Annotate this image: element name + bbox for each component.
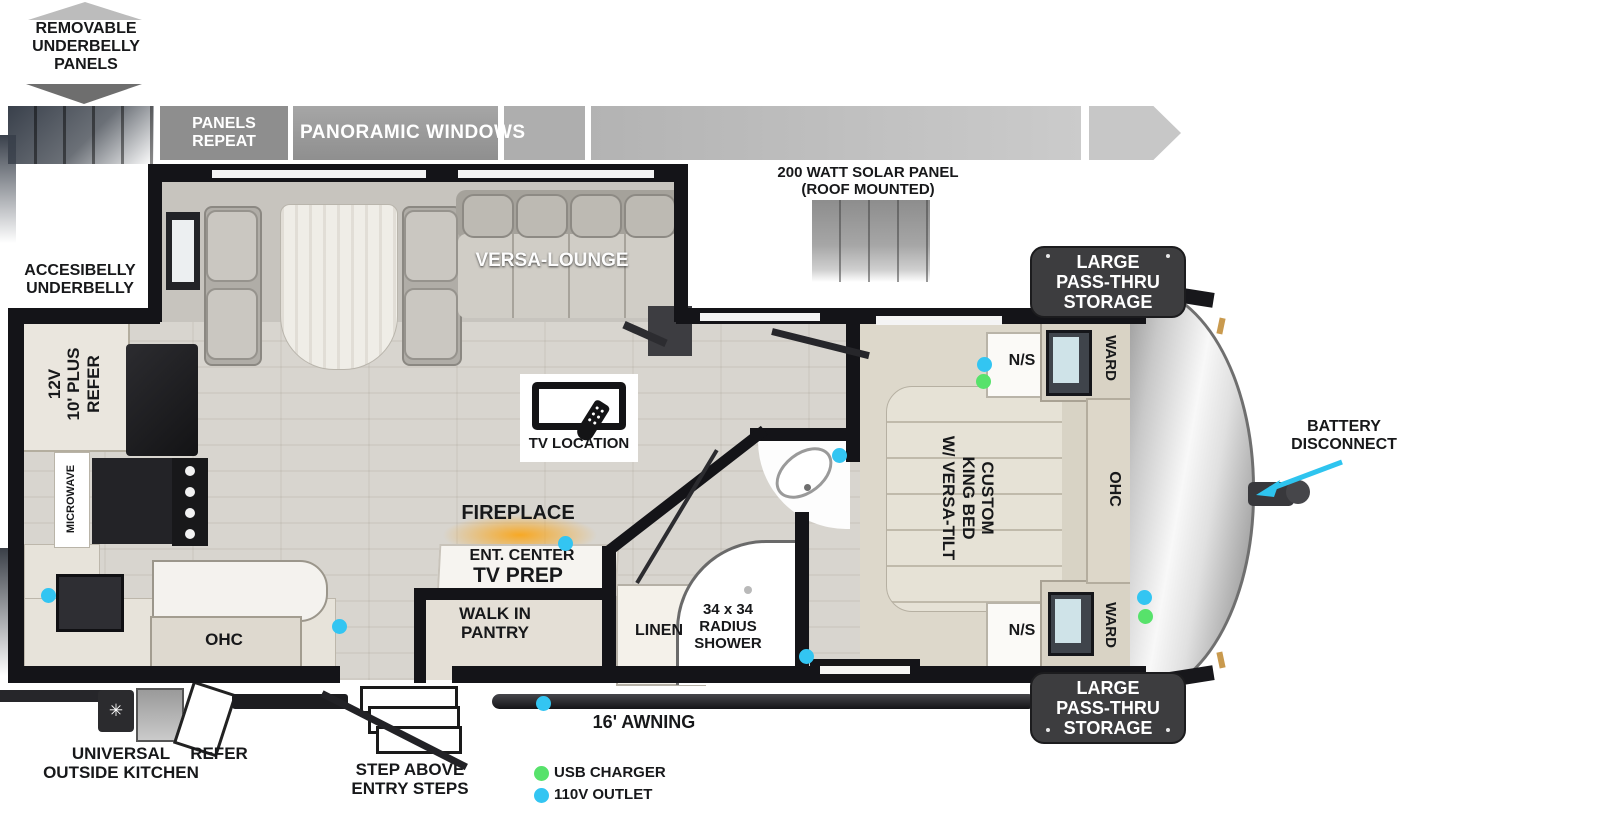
pass-thru-storage-badge: LARGE PASS-THRU STORAGE [1030,246,1186,318]
shower-label: 34 x 34 RADIUS SHOWER [688,602,768,652]
110v-outlet-dot [832,448,847,463]
wardrobe-label: WARD [1098,590,1118,660]
pantry-wall-top [414,588,610,600]
rear-bumper-bar [0,690,104,702]
microwave-label: MICROWAVE [58,451,84,547]
window-slit [876,316,1002,325]
removable-underbelly-label: REMOVABLE UNDERBELLY PANELS [24,20,148,74]
wall-left [8,308,24,683]
110v-outlet-dot [1137,590,1152,605]
window-glass [172,220,194,282]
refrigerator-unit [126,344,198,456]
screw-dot [1166,254,1170,258]
slideout-wall-left [148,164,162,322]
110v-outlet-dot [558,536,573,551]
battery-disconnect-label: BATTERY DISCONNECT [1282,418,1406,454]
usb-charger-legend-dot [534,766,549,781]
pass-thru-storage-badge: LARGE PASS-THRU STORAGE [1030,672,1186,744]
underbelly-panels-edge [0,135,16,243]
slideout-wall-right [674,164,688,322]
outlet-legend-dot [534,788,549,803]
110v-outlet-dot [977,357,992,372]
versa-lounge-headrest [462,194,514,238]
nightstand-label: N/S [988,622,1056,640]
kitchen-window [56,574,124,632]
dinette-cushion [206,288,258,360]
pantry-wall-left [414,588,426,683]
versa-lounge-label: VERSA-LOUNGE [462,250,642,271]
110v-outlet-dot [332,619,347,634]
outside-refer-label: REFER [184,744,254,763]
bedroom-ohc-label: OHC [1103,459,1123,519]
awning-label: 16' AWNING [584,712,704,732]
dinette-cushion [404,288,458,360]
tv-prep-label: TV PREP [448,564,588,588]
fireplace-label: FIREPLACE [446,502,590,524]
arrow-down-icon [26,84,142,104]
microwave-unit [92,458,172,544]
window-banner-arrow [1089,106,1181,160]
versa-lounge-headrest [570,194,622,238]
usb-charger-legend-label: USB CHARGER [554,765,694,782]
window-banner-segment [591,106,1081,160]
refrigerator-label: 12V 10' PLUS REFER [26,324,122,444]
kitchen-ohc-label: OHC [196,630,252,649]
110v-outlet-dot [536,696,551,711]
dinette-table [280,204,398,370]
faucet-dot [804,484,811,491]
window-slit [700,313,820,321]
110v-outlet-dot [41,588,56,603]
front-cap [1130,284,1255,698]
panels-repeat-banner: PANELS REPEAT [160,106,288,160]
wall-bottom-left [8,666,340,683]
shower-drain [744,586,752,594]
king-bed-label: CUSTOM KING BED W/ VERSA-TILT [903,383,1033,613]
dinette-cushion [206,210,258,282]
wall-top-left [8,308,160,324]
mirror-glass [1055,599,1081,643]
outlet-legend-label: 110V OUTLET [554,787,694,804]
window-slit [212,170,426,178]
pantry-label: WALK IN PANTRY [430,604,560,642]
stove-burners [172,458,208,546]
tv-location-label: TV LOCATION [520,436,638,453]
dinette-cushion [404,210,458,282]
mirror-glass [1053,337,1079,383]
bed-headboard [1062,390,1088,606]
outside-kitchen-fan: ✳ [98,690,134,732]
versa-lounge-headrest [516,194,568,238]
screw-dot [1046,728,1050,732]
wardrobe-label: WARD [1098,323,1118,393]
clearance-light [1216,652,1225,669]
bathroom-wall-left [602,546,616,683]
usb-charger-dot [976,374,991,389]
screw-dot [1166,728,1170,732]
arrow-up-icon [28,2,142,20]
awning-bar [492,694,1036,709]
window-slit [820,666,910,674]
usb-charger-dot [1138,609,1153,624]
floorplan-diagram: REMOVABLE UNDERBELLY PANELS PANELS REPEA… [0,0,1600,837]
versa-lounge-headrest [624,194,676,238]
battery-disconnect-arrow [1250,450,1350,502]
underbelly-panels-graphic [8,106,154,164]
window-slit [458,170,654,178]
solar-panel-label: 200 WATT SOLAR PANEL (ROOF MOUNTED) [758,165,978,199]
accesibelly-underbelly-label: ACCESIBELLY UNDERBELLY [8,262,152,298]
panoramic-windows-label: PANORAMIC WINDOWS [300,122,540,144]
screw-dot [1046,254,1050,258]
110v-outlet-dot [799,649,814,664]
solar-panel-graphic [812,200,930,282]
kitchen-peninsula [152,560,328,622]
ent-center-label: ENT. CENTER [452,547,592,565]
clearance-light [1216,318,1225,335]
